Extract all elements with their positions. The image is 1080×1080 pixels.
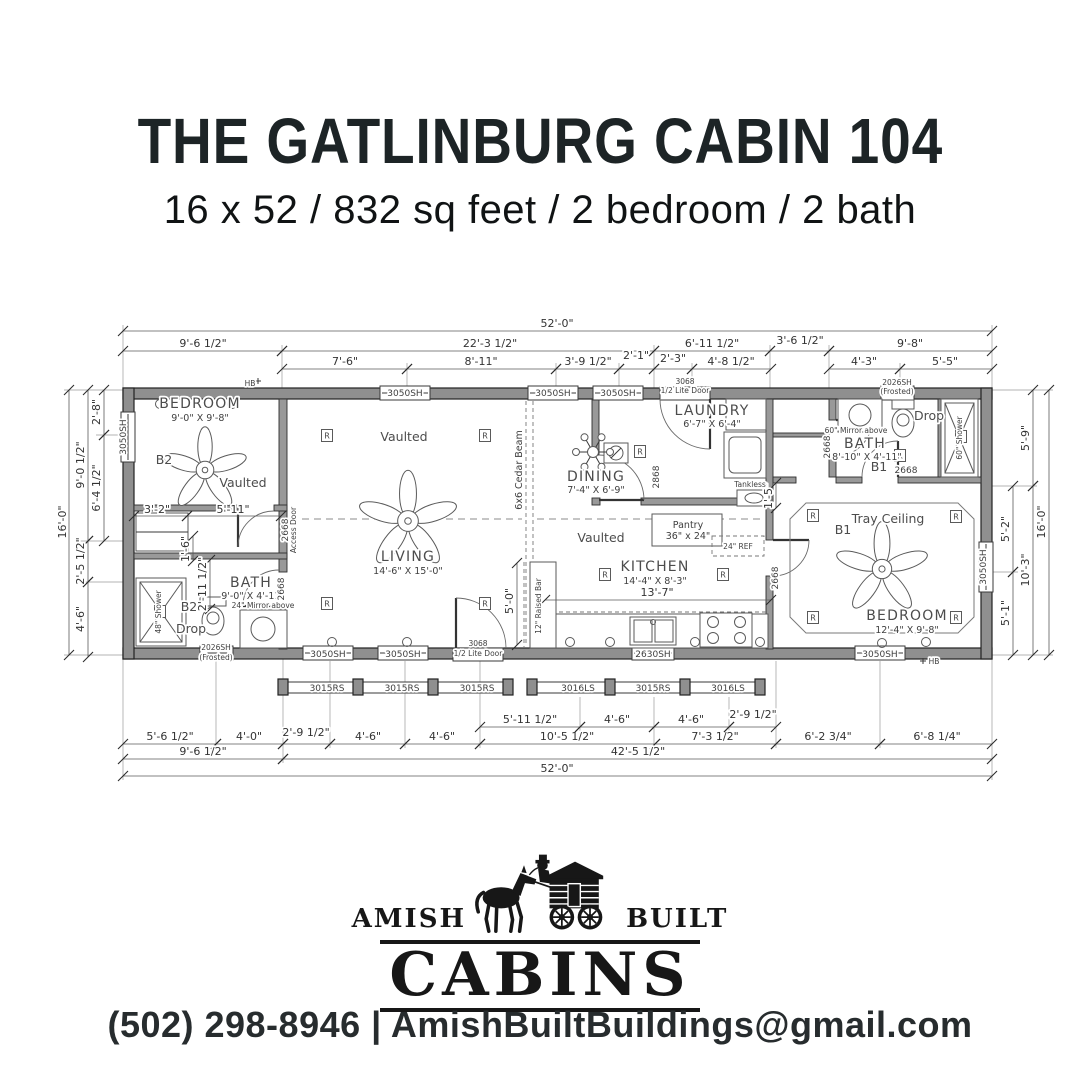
plan-label: 3015RS [385,684,420,694]
plan-label: 2668 [277,577,287,600]
plan-label: BEDROOM [159,396,240,412]
dimension-label: 6'-8 1/4" [913,730,960,743]
plan-label: 3068 [675,377,694,386]
dimension-label: 8'-11" [464,355,497,368]
dimension-label: 2'-9 1/2" [282,726,329,739]
plan-label: 7'-4" X 6'-9" [567,485,625,496]
dimension-label: 10'-3" [1019,553,1032,586]
logo-top-row: AMISH [352,852,729,938]
plan-label: Drop [176,621,206,636]
logo-amish: AMISH [352,904,466,938]
dimension-label: 3'-6 1/2" [776,334,823,347]
dimension-label: 5'-2" [999,516,1012,542]
dimension-label: 9'-8" [897,337,923,350]
plan-label: 3015RS [636,684,671,694]
plan-label: 2668 [823,435,833,458]
dimension-label: 16'-0" [56,505,69,538]
plan-label: HB [245,379,256,388]
plan-label: Tankless [733,480,766,489]
plan-label: 36" x 24" [666,531,711,542]
plan-label: 3050SH [310,650,345,660]
plan-label: 1/2 Lite Door [454,649,504,658]
dimension-label: 9'-0 1/2" [74,441,87,488]
plan-label: 2668 [771,566,781,589]
dimension-label: 6'-11 1/2" [685,337,739,350]
plan-label: KITCHEN [620,559,689,575]
dimension-label: 52'-0" [540,317,573,330]
email-address: AmishBuiltBuildings@gmail.com [391,1004,973,1045]
plan-label: 12" Raised Bar [534,577,543,634]
dimension-label: 4'-8 1/2" [707,355,754,368]
dimension-label: 13'-7" [640,586,673,599]
plan-label: 2668 [895,466,918,476]
plan-label: 8'-10" X 4'-11" [832,452,902,463]
dimension-label: 5'-0" [503,588,516,614]
plan-label: 2026SH [882,378,912,387]
plan-label: 3015RS [310,684,345,694]
dimension-label: 5'-6 1/2" [146,730,193,743]
porch [278,679,765,695]
plan-label: 3015RS [460,684,495,694]
plan-label: 3050SH [387,389,422,399]
plan-label: BEDROOM [866,608,947,624]
dimension-label: 5'-5" [932,355,958,368]
plan-label: B1 [871,459,888,474]
contact-line: (502) 298-8946 | AmishBuiltBuildings@gma… [0,1004,1080,1046]
plan-label: 3050SH [119,419,129,454]
plan-label: Drop [914,408,944,423]
plan-label: HB [929,657,940,666]
dimension-label: 2'-1" [623,349,649,362]
dimension-label: 4'-6" [678,713,704,726]
plan-label: 24" REF [723,542,753,551]
plan-label: 14'-6" X 15'-0" [373,566,443,577]
plan-label: 2630SH [635,650,670,660]
light-fixture-icon [922,638,931,647]
dimension-label: 4'-6" [429,730,455,743]
recessed-light-glyph: R [602,571,608,580]
ceiling-fan-icon [162,427,249,509]
plan-label: 2668 [281,518,291,541]
plan-label: 2868 [652,465,662,488]
plan-label: 3050SH [979,549,989,584]
dimension-label: 4'-6" [74,606,87,632]
plan-label: Vaulted [219,475,266,490]
plan-label: 3050SH [535,389,570,399]
dimension-label: 4'-3" [851,355,877,368]
plan-label: 60" Mirror above [825,426,888,435]
dimension-label: 7'-6" [332,355,358,368]
dimension-label: 5'-9" [1019,425,1032,451]
plan-label: (Frosted) [880,387,913,396]
light-fixture-icon [403,638,412,647]
dimension-label: 2'-11 1/2" [196,557,209,611]
plan-label: 3016LS [711,684,745,694]
plan-label: 14'-4" X 8'-3" [623,576,687,587]
dimension-label: 5'-11 1/2" [503,713,557,726]
dimension-label: 22'-3 1/2" [463,337,517,350]
plan-label: Pantry [673,520,704,531]
recessed-light-glyph: R [482,432,488,441]
plan-label: Tray Ceiling [851,511,925,526]
plan-label: 9'-0" X 9'-8" [171,413,229,424]
recessed-light-glyph: R [482,600,488,609]
recessed-light-glyph: R [637,448,643,457]
recessed-light-glyph: R [720,571,726,580]
plan-label: 3016LS [561,684,595,694]
recessed-light-glyph: R [324,600,330,609]
dimension-label: 9'-6 1/2" [179,337,226,350]
light-fixture-icon [328,638,337,647]
plan-label: 6'-7" X 6'-4" [683,419,741,430]
plan-label: BATH [844,436,886,452]
separator: | [371,1004,382,1045]
plan-label: 60" Shower [955,415,964,459]
brand-logo: AMISH [0,852,1080,1012]
plan-label: LIVING [381,549,435,565]
dimension-label: 10'-5 1/2" [540,730,594,743]
dimension-label: 3'-2" [144,503,170,516]
plan-label: 48" Shower [154,589,163,633]
poster: THE GATLINBURG CABIN 104 16 x 52 / 832 s… [0,0,1080,1080]
plan-label: (Frosted) [199,653,232,662]
dimension-label: 3'-9 1/2" [564,355,611,368]
dimension-label: 9'-6 1/2" [179,745,226,758]
recessed-light-glyph: R [324,432,330,441]
plan-label: B2 [156,452,173,467]
plan-label: B2 [181,599,198,614]
dimension-label: 6'-4 1/2" [90,464,103,511]
dimension-label: 4'-6" [355,730,381,743]
phone-number: (502) 298-8946 [107,1004,360,1045]
plan-label: 2026SH [201,643,231,652]
plan-label: Vaulted [577,530,624,545]
dimension-label: 4'-6" [604,713,630,726]
plan-label: 3050SH [862,650,897,660]
dimension-label: 1'-6" [179,536,192,562]
dimension-label: 6'-2 3/4" [804,730,851,743]
plan-label: 6x6 Cedar Beam [514,430,525,509]
dimension-label: 16'-0" [1035,505,1048,538]
dimension-label: 5'-1" [999,600,1012,626]
dimension-label: 5'-11" [216,503,249,516]
dimension-label: 2'-9 1/2" [729,708,776,721]
logo-built: BUILT [626,904,728,938]
dimension-label: 2'-5 1/2" [74,537,87,584]
dimension-label: 42'-5 1/2" [611,745,665,758]
plan-label: 24" Mirror above [232,601,295,610]
plan-label: 12'-4" X 9'-8" [875,625,939,636]
dimension-label: 2'-8" [90,399,103,425]
plan-label: LAUNDRY [675,403,750,419]
plan-label: Vaulted [380,429,427,444]
plan-label: 3068 [468,639,487,648]
recessed-light-glyph: R [953,614,959,623]
dimension-label: 2'-3" [660,352,686,365]
recessed-light-glyph: R [810,614,816,623]
dimension-label: 52'-0" [540,762,573,775]
plan-label: DINING [567,469,625,485]
dimension-label: 7'-3 1/2" [691,730,738,743]
plan-label: 3050SH [600,389,635,399]
plan-label: B1 [835,522,852,537]
recessed-light-glyph: R [810,512,816,521]
plan-label: 1/2 Lite Door [661,386,711,395]
horse-and-wagon-icon [470,852,622,940]
recessed-light-glyph: R [953,513,959,522]
logo-cabins: CABINS [389,944,690,1006]
dimension-label: 4'-0" [236,730,262,743]
plan-label: BATH [230,575,272,591]
plan-label: 3050SH [385,650,420,660]
